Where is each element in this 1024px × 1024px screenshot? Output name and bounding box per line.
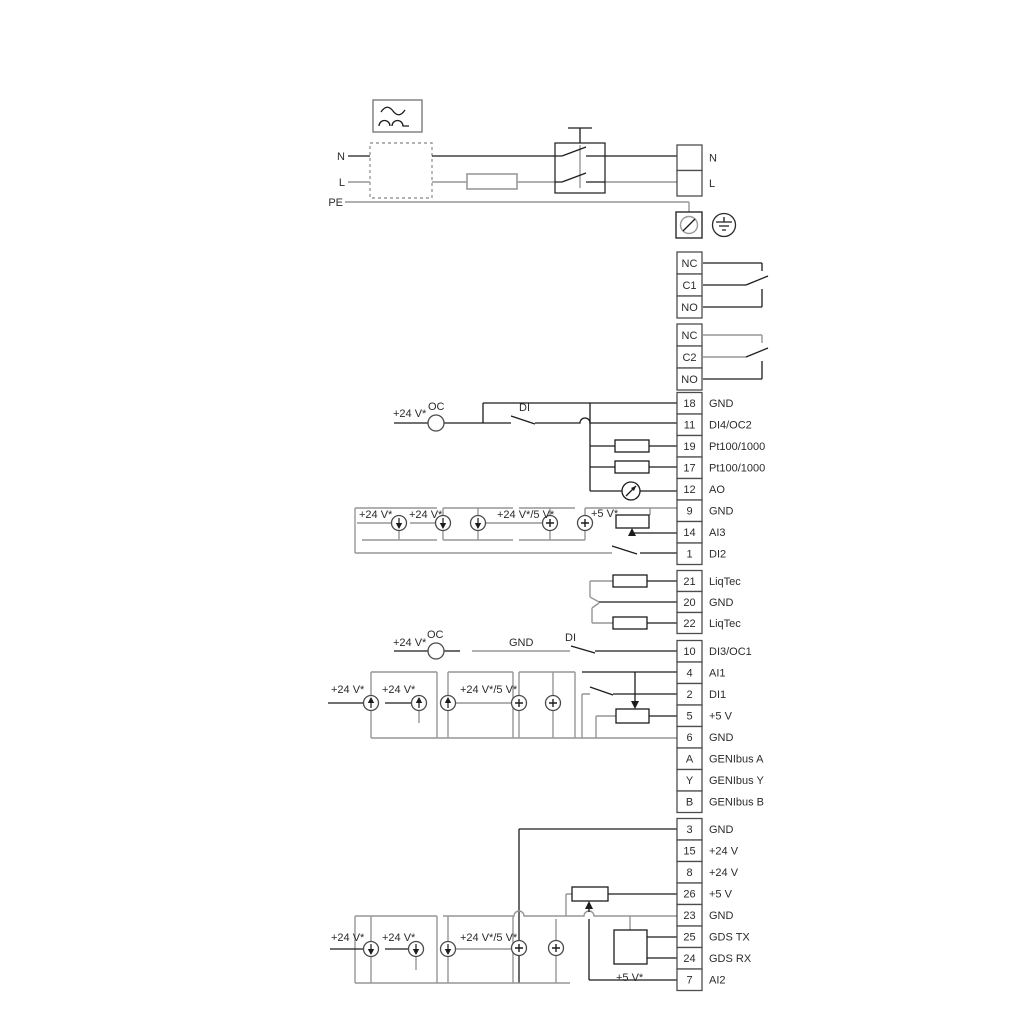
- terminal-id: 3: [686, 824, 692, 836]
- current-source-icon: [392, 516, 407, 531]
- label-oc-row2: OC: [427, 629, 444, 641]
- label-di-row2: DI: [565, 632, 576, 644]
- wire: [703, 276, 768, 285]
- terminal-id: 4: [686, 668, 692, 680]
- wire: [632, 533, 677, 534]
- terminal-label: +24 V: [709, 867, 739, 879]
- terminal-block-io3: 10DI3/OC14AI12DI15+5 V6GNDAGENIbus AYGEN…: [677, 641, 764, 813]
- wire: [703, 361, 762, 379]
- label-24v-ai3-b: +24 V*: [409, 509, 443, 521]
- terminal-id: A: [686, 754, 694, 766]
- wire: [571, 646, 595, 653]
- terminal-id: 10: [683, 646, 695, 658]
- wire: [703, 289, 762, 307]
- wire: [703, 335, 762, 343]
- terminal-id: 5: [686, 711, 692, 723]
- wiper-arrow-icon: [628, 528, 636, 536]
- ac-supply-icon: [373, 100, 422, 132]
- label-l-left: L: [339, 177, 345, 189]
- voltage-source-icon: [546, 696, 561, 711]
- potentiometer-symbol: [616, 515, 649, 528]
- terminal-label: GND: [709, 597, 734, 609]
- terminal-label: AI3: [709, 527, 726, 539]
- terminal-label: DI1: [709, 689, 726, 701]
- label-n-left: N: [337, 151, 345, 163]
- voltage-source-icon: [512, 696, 527, 711]
- terminal-id: 25: [683, 932, 695, 944]
- terminal-block-liqtec: 21LiqTec20GND22LiqTec: [677, 571, 741, 634]
- label-24v-oc-row2: +24 V*: [393, 637, 427, 649]
- terminal-label: GND: [709, 910, 734, 922]
- terminal-id: 1: [686, 549, 692, 561]
- voltage-source-icon: [549, 941, 564, 956]
- terminal-id: 11: [684, 420, 695, 432]
- terminal-id: NO: [681, 374, 698, 386]
- wire: [483, 403, 677, 423]
- terminal-id: NO: [681, 302, 698, 314]
- terminal-id: 14: [683, 527, 695, 539]
- terminal-block-io2: 9GND14AI31DI2: [677, 500, 734, 565]
- resistor-symbol: [615, 440, 649, 452]
- terminal-label: +5 V: [709, 711, 733, 723]
- terminal-id: 12: [683, 484, 695, 496]
- terminal-label: GENIbus A: [709, 754, 764, 766]
- terminal-label: LiqTec: [709, 618, 741, 630]
- wire: [612, 546, 637, 554]
- label-5v-ai3: +5 V*: [591, 508, 619, 520]
- terminal-id: 18: [683, 398, 695, 410]
- wiring-diagram-page: NLNCC1NONCC2NO18GND11DI4/OC219Pt100/1000…: [0, 0, 1024, 1024]
- wire: [596, 716, 616, 738]
- current-source-icon: [441, 942, 456, 957]
- wire: [592, 603, 613, 623]
- terminal-id: 21: [683, 576, 695, 588]
- wire: [590, 581, 599, 602]
- terminal-label: LiqTec: [709, 576, 741, 588]
- terminal-block-relay2: NCC2NO: [677, 324, 702, 390]
- current-source-icon: [364, 696, 379, 711]
- label-pe: PE: [328, 197, 343, 209]
- terminal-label: DI4/OC2: [709, 420, 752, 432]
- label-24v-ai3-a: +24 V*: [359, 509, 393, 521]
- current-source-icon: [441, 696, 456, 711]
- terminal-label: GND: [709, 824, 734, 836]
- terminal-id: NC: [682, 330, 698, 342]
- terminal-id: 24: [683, 953, 695, 965]
- protective-earth-icon: [713, 214, 736, 237]
- terminal-label: N: [709, 153, 717, 165]
- terminal-label: AI2: [709, 975, 726, 987]
- terminal-id: 22: [683, 618, 695, 630]
- terminal-id: NC: [682, 258, 698, 270]
- wiper-arrow-icon: [631, 701, 639, 709]
- terminal-label: AO: [709, 484, 725, 496]
- terminal-label: +24 V: [709, 846, 739, 858]
- terminal-id: Y: [686, 775, 694, 787]
- terminal-label: DI2: [709, 549, 726, 561]
- terminal-block-io4: 3GND15+24 V8+24 V26+5 V23GND25GDS TX24GD…: [677, 819, 752, 991]
- open-collector-icon: [428, 415, 444, 431]
- terminal-id: 6: [686, 732, 692, 744]
- terminal-id: 26: [683, 889, 695, 901]
- terminal-label: Pt100/1000: [709, 463, 765, 475]
- wire: [566, 894, 572, 916]
- resistor-symbol: [615, 461, 649, 473]
- wire: [355, 911, 677, 916]
- terminal-id: 7: [686, 975, 692, 987]
- potentiometer-symbol: [572, 887, 608, 901]
- wire: [582, 694, 590, 738]
- current-source-icon: [412, 696, 427, 711]
- label-24v-ai2-a: +24 V*: [331, 932, 365, 944]
- label-24v5v-ai3: +24 V*/5 V*: [497, 509, 555, 521]
- terminal-id: 19: [683, 441, 695, 453]
- terminal-label: +5 V: [709, 889, 733, 901]
- wire: [703, 263, 762, 271]
- terminal-label: DI3/OC1: [709, 646, 752, 658]
- wire: [371, 672, 575, 738]
- wire: [590, 687, 613, 695]
- terminal-label: GND: [709, 732, 734, 744]
- terminal-id: C1: [682, 280, 696, 292]
- terminal-label: GDS RX: [709, 953, 752, 965]
- label-24v5v-ai2: +24 V*/5 V*: [460, 932, 518, 944]
- earth-terminal-icon: [676, 212, 702, 238]
- wiper-arrow-icon: [585, 901, 593, 909]
- terminal-label: GDS TX: [709, 932, 750, 944]
- terminal-id: 15: [683, 846, 695, 858]
- current-source-icon: [364, 942, 379, 957]
- terminal-label: GND: [709, 398, 734, 410]
- wire: [511, 416, 535, 424]
- fuse-symbol: [467, 174, 517, 189]
- label-24v-ai1-b: +24 V*: [382, 684, 416, 696]
- terminal-label: L: [709, 178, 715, 190]
- pump-wiring-diagram: NLNCC1NONCC2NO18GND11DI4/OC219Pt100/1000…: [0, 0, 1024, 1024]
- terminal-label: GENIbus B: [709, 797, 764, 809]
- terminal-block-power_nl: NL: [677, 145, 717, 196]
- wire: [519, 829, 677, 983]
- label-5v-ai2: +5 V*: [616, 972, 644, 984]
- label-24v-oc-row1: +24 V*: [393, 408, 427, 420]
- wire: [535, 418, 677, 423]
- terminal-label: AI1: [709, 668, 726, 680]
- terminal-id: 8: [686, 867, 692, 879]
- terminal-label: Pt100/1000: [709, 441, 765, 453]
- mains-filter-box: [370, 143, 432, 198]
- terminal-id: 17: [683, 463, 695, 475]
- resistor-symbol: [613, 617, 647, 629]
- double-pole-switch-symbol: [555, 128, 605, 193]
- open-collector-icon: [428, 643, 444, 659]
- terminal-id: B: [686, 797, 693, 809]
- label-24v-ai1-a: +24 V*: [331, 684, 365, 696]
- wire: [650, 508, 677, 515]
- terminal-id: C2: [682, 352, 696, 364]
- terminal-block-relay1: NCC1NO: [677, 252, 702, 318]
- terminal-id: 23: [683, 910, 695, 922]
- gds-sensor-box: [614, 930, 647, 964]
- resistor-symbol: [613, 575, 647, 587]
- terminal-label: GENIbus Y: [709, 775, 764, 787]
- wire: [746, 348, 768, 357]
- potentiometer-symbol: [616, 709, 649, 723]
- terminal-block-io1: 18GND11DI4/OC219Pt100/100017Pt100/100012…: [677, 393, 765, 501]
- label-di-row1: DI: [519, 402, 530, 414]
- label-gnd-row2: GND: [509, 637, 534, 649]
- label-24v-ai2-b: +24 V*: [382, 932, 416, 944]
- terminal-cell: [677, 145, 702, 171]
- label-oc-row1: OC: [428, 401, 445, 413]
- terminal-label: GND: [709, 506, 734, 518]
- terminal-id: 9: [686, 506, 692, 518]
- label-24v5v-ai1: +24 V*/5 V*: [460, 684, 518, 696]
- terminal-id: 2: [686, 689, 692, 701]
- terminal-blocks: NLNCC1NONCC2NO18GND11DI4/OC219Pt100/1000…: [677, 145, 765, 991]
- current-source-icon: [471, 516, 486, 531]
- terminal-cell: [677, 171, 702, 197]
- terminal-id: 20: [683, 597, 695, 609]
